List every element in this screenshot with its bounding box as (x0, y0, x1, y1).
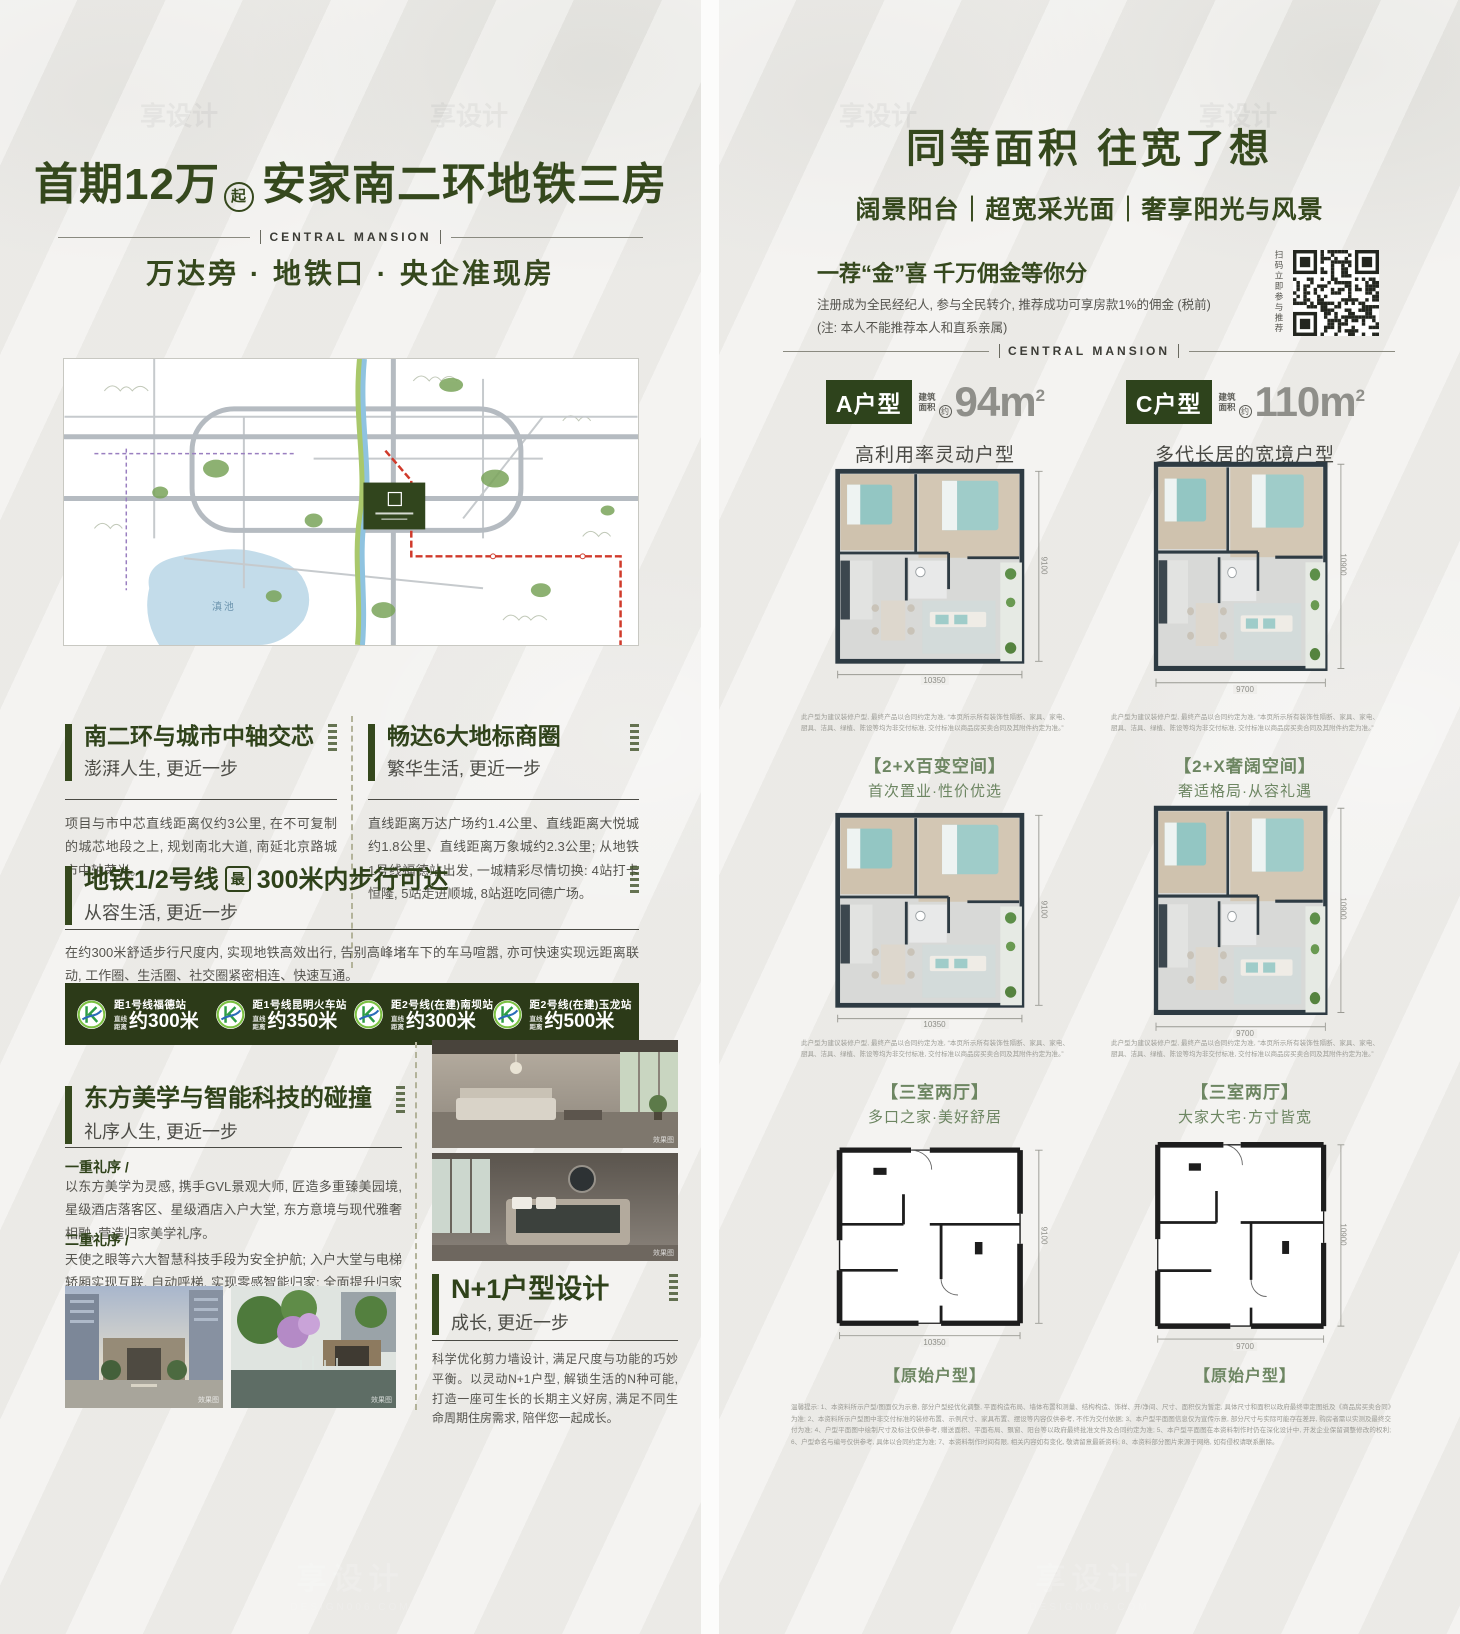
dim-width: 10350 (920, 676, 948, 685)
left-poster: 享设计 享设计 首期12万起安家南二环地铁三房 CENTRAL MANSION … (0, 0, 701, 1634)
dim-width: 9700 (1233, 1342, 1257, 1351)
floorplan-a-render-1: 10350 9100 (817, 458, 1052, 686)
section-title: N+1户型设计 (451, 1274, 609, 1304)
metro-logo-icon (491, 998, 524, 1031)
photo-bedroom: 效果图 (432, 1153, 678, 1261)
photo-garden: 效果图 (231, 1286, 396, 1408)
qr-code (1293, 250, 1379, 336)
section-title: 畅达6大地标商圈 (387, 724, 561, 750)
section-subtitle: 礼序人生, 更近一步 (84, 1118, 372, 1144)
area-label: 建筑面积 (1219, 392, 1236, 412)
dim-width: 9700 (1233, 685, 1257, 694)
zui-badge: 最 (225, 866, 251, 892)
rule (65, 799, 337, 800)
metro-logo-icon (214, 998, 247, 1031)
metro-item: 距1号线昆明火车站 直线距离约350米 (214, 997, 353, 1031)
section-bar (65, 866, 72, 925)
area-approx: 约 (1239, 405, 1252, 418)
dim-width: 10350 (920, 1020, 948, 1029)
plan-tagline: 多口之家·美好舒居 (785, 1106, 1085, 1127)
legal-disclaimer: 温馨提示: 1、本资料所示户型/图面仅为示意, 部分户型经优化调整, 平面构造布… (791, 1402, 1391, 1449)
photo-caption: 效果图 (198, 1395, 219, 1405)
qr-caption: 扫码立即参与推荐 (1273, 250, 1285, 336)
section-subtitle: 澎湃人生, 更近一步 (84, 755, 314, 781)
plan-tag: 【原始户型】 (1095, 1362, 1395, 1386)
plan-note: 此户型为建议装修户型, 最终产品以合同约定为准, “本页所示所有装饰性隔断、家具… (801, 712, 1069, 734)
brand-divider: CENTRAL MANSION (58, 230, 643, 244)
section-title: 南二环与城市中轴交芯 (84, 724, 314, 750)
seal-icon (328, 724, 337, 754)
plan-tag: 【2+X奢阔空间】 (1095, 752, 1395, 777)
panel-gutter (701, 0, 719, 1634)
rule (65, 929, 639, 930)
promo-line1: 注册成为全民经纪人, 参与全民转介, 推荐成功可享房款1%的佣金 (税前) (817, 294, 1211, 313)
unit-name-badge: C户型 (1126, 380, 1212, 424)
ritual-1-label: 一重礼序 / (65, 1157, 129, 1177)
rule (368, 799, 639, 800)
dim-height: 10900 (1338, 898, 1347, 920)
photo-entrance: 效果图 (65, 1286, 223, 1408)
left-footer-band: 享设计DESIGN006.COM (0, 1462, 701, 1634)
floorplan-c-render-1: 9700 10900 (1137, 450, 1353, 695)
lake-label: 滇池 (212, 600, 236, 613)
poster-canvas: 享设计 享设计 首期12万起安家南二环地铁三房 CENTRAL MANSION … (0, 0, 1460, 1634)
section-body: 在约300米舒适步行尺度内, 实现地铁高效出行, 告别高峰堵车下的车马喧嚣, 亦… (65, 941, 639, 988)
dim-width: 9700 (1233, 1029, 1257, 1038)
unit-area: 110m2 (1255, 381, 1365, 423)
column-divider (351, 716, 353, 968)
metro-distance-bar: 距1号线福德站 直线距离约300米 距1号线昆明火车站 直线距离约350米 距2… (65, 983, 639, 1045)
metro-item: 距1号线福德站 直线距离约300米 (75, 997, 214, 1031)
section-malls: 畅达6大地标商圈 繁华生活, 更近一步 (368, 724, 639, 781)
dim-height: 10900 (1338, 1223, 1347, 1245)
photo-caption: 效果图 (653, 1248, 674, 1258)
plan-note: 此户型为建议装修户型, 最终产品以合同约定为准, “本页所示所有装饰性隔断、家具… (1111, 1038, 1379, 1060)
unit-name-badge: A户型 (826, 380, 912, 424)
plan-tagline: 大家大宅·方寸皆宽 (1095, 1106, 1395, 1127)
brand-divider: CENTRAL MANSION (783, 344, 1395, 358)
section-bar (432, 1274, 439, 1335)
brand-name: CENTRAL MANSION (260, 230, 440, 244)
plan-note: 此户型为建议装修户型, 最终产品以合同约定为准, “本页所示所有装饰性隔断、家具… (801, 1038, 1069, 1060)
map-illustration: 滇池 (64, 359, 638, 645)
seal-icon (630, 724, 639, 754)
seal-icon (396, 1086, 405, 1116)
plan-tag: 【2+X百变空间】 (785, 752, 1085, 777)
dim-height: 9100 (1040, 556, 1049, 574)
left-main-title: 首期12万起安家南二环地铁三房 (0, 148, 701, 212)
rule (65, 1147, 402, 1148)
location-map: 滇池 (63, 358, 639, 646)
dim-height: 9100 (1040, 1227, 1049, 1245)
watermark: 享设计DESIGN006.COM (1029, 1554, 1149, 1613)
column-divider (415, 1042, 417, 1410)
unit-area: 94m2 (955, 381, 1045, 423)
plan-tag: 【原始户型】 (785, 1362, 1085, 1386)
rule (432, 1340, 678, 1341)
seal-icon (669, 1274, 678, 1304)
unit-a-header: A户型 建筑面积 约 94m2 (785, 380, 1085, 424)
photo-caption: 效果图 (371, 1395, 392, 1405)
section-bar (65, 724, 72, 781)
section-n1: N+1户型设计 成长, 更近一步 (432, 1274, 678, 1335)
project-site (363, 483, 425, 530)
section-aesthetics: 东方美学与智能科技的碰撞 礼序人生, 更近一步 (65, 1086, 405, 1144)
floorplan-c-original: 9700 10900 (1137, 1130, 1353, 1352)
promo-headline: 一荐“金”喜 千万佣金等你分 (817, 256, 1087, 288)
dim-height: 9100 (1040, 900, 1049, 918)
right-poster: 享设计 享设计 同等面积 往宽了想 阔景阳台｜超宽采光面｜奢享阳光与风景 一荐“… (719, 0, 1460, 1634)
plan-note: 此户型为建议装修户型, 最终产品以合同约定为准, “本页所示所有装饰性隔断、家具… (1111, 712, 1379, 734)
seal-icon (630, 866, 639, 896)
right-footer-band: 享设计DESIGN006.COM (719, 1462, 1460, 1634)
right-subtitle: 阔景阳台｜超宽采光面｜奢享阳光与风景 (719, 190, 1460, 226)
section-subtitle: 成长, 更近一步 (451, 1309, 609, 1335)
section-southring: 南二环与城市中轴交芯 澎湃人生, 更近一步 (65, 724, 337, 781)
metro-item: 距2号线(在建)南坝站 直线距离约300米 (352, 997, 491, 1031)
plan-tag: 【三室两厅】 (1095, 1078, 1395, 1103)
dim-width: 10350 (920, 1338, 948, 1347)
plan-tag: 【三室两厅】 (785, 1078, 1085, 1103)
metro-logo-icon (352, 998, 385, 1031)
section-bar (65, 1086, 72, 1144)
promo-line2: (注: 本人不能推荐本人和直系亲属) (817, 317, 1007, 336)
unit-c-header: C户型 建筑面积 约 110m2 (1095, 380, 1395, 424)
floorplan-a-original: 10350 9100 (817, 1136, 1052, 1348)
qi-badge: 起 (224, 182, 254, 212)
section-body: 科学优化剪力墙设计, 满足尺度与功能的巧妙平衡。以灵动N+1户型, 解锁生活的N… (432, 1350, 678, 1429)
section-title: 东方美学与智能科技的碰撞 (84, 1086, 372, 1113)
right-main-title: 同等面积 往宽了想 (719, 116, 1460, 174)
plan-tagline: 首次置业·性价优选 (785, 780, 1085, 801)
metro-logo-icon (75, 998, 108, 1031)
watermark: 享设计 (430, 96, 508, 133)
floorplan-a-render-2: 10350 9100 (817, 802, 1052, 1030)
brand-name: CENTRAL MANSION (999, 344, 1179, 358)
floorplan-c-render-2: 9700 10900 (1137, 794, 1353, 1039)
section-subtitle: 从容生活, 更近一步 (84, 899, 448, 925)
watermark: 享设计DESIGN006.COM (290, 1554, 410, 1613)
area-label: 建筑面积 (919, 392, 936, 412)
dim-height: 10900 (1338, 554, 1347, 576)
photo-caption: 效果图 (653, 1135, 674, 1145)
ritual-2-label: 二重礼序 / (65, 1230, 129, 1250)
left-tagline: 万达旁 · 地铁口 · 央企准现房 (0, 252, 701, 292)
metro-item: 距2号线(在建)玉龙站 直线距离约500米 (491, 997, 630, 1031)
area-approx: 约 (939, 405, 952, 418)
section-bar (368, 724, 375, 781)
watermark: 享设计 (140, 96, 218, 133)
photo-living-room: 效果图 (432, 1040, 678, 1148)
section-metro: 地铁1/2号线最300米内步行可达 从容生活, 更近一步 (65, 866, 639, 925)
section-subtitle: 繁华生活, 更近一步 (387, 755, 561, 781)
